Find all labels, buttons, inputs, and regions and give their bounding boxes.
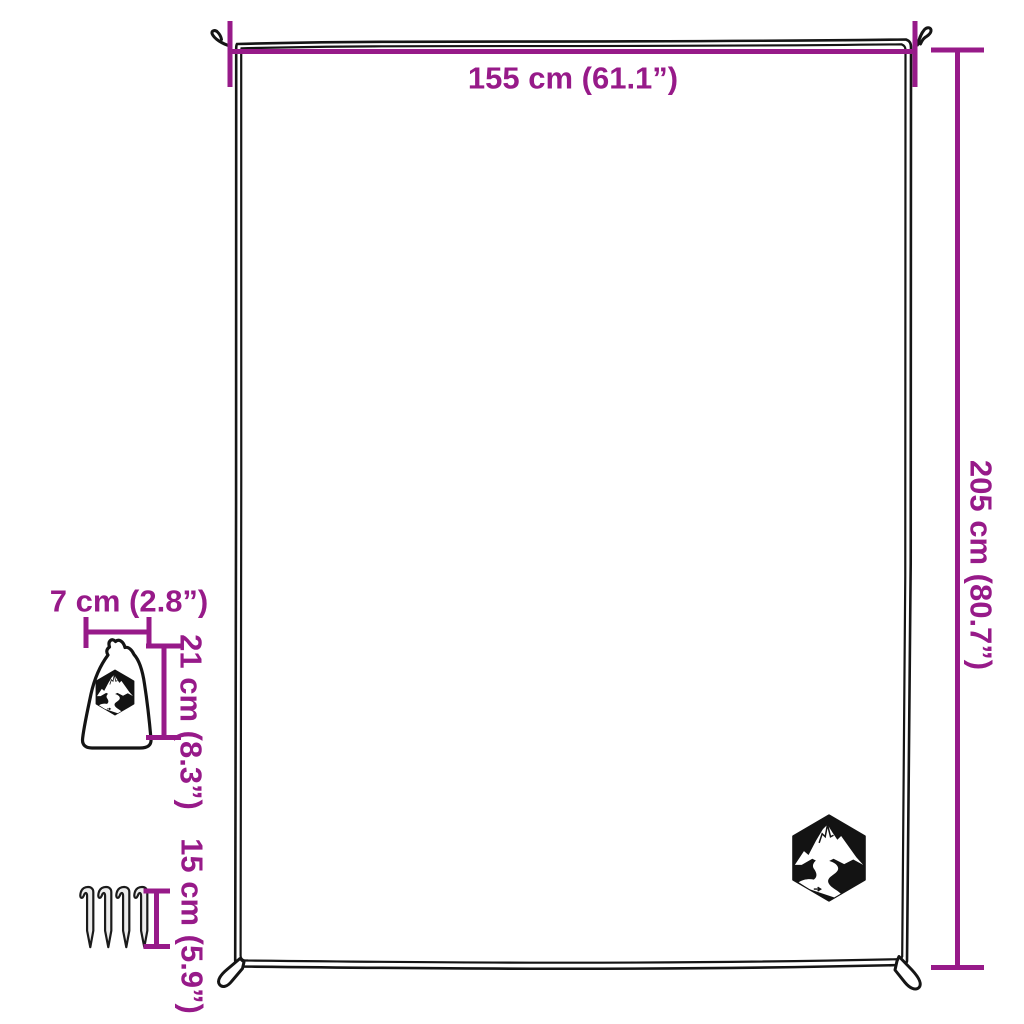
- blanket-height-label: 205 cm (80.7”): [966, 460, 997, 670]
- diagram-canvas: [0, 0, 1024, 1024]
- bag-height-label: 21 cm (8.3”): [176, 634, 207, 810]
- tent-peg-icon: [134, 887, 147, 947]
- storage-bag: [83, 640, 152, 748]
- blanket-corner-tab-bottom-left: [219, 959, 244, 987]
- tent-peg-icon: [98, 887, 111, 947]
- bag-width-label: 7 cm (2.8”): [50, 586, 209, 617]
- tent-pegs: [80, 887, 147, 947]
- peg-height-label: 15 cm (5.9”): [177, 838, 208, 1014]
- blanket-outline: [212, 28, 931, 989]
- tent-peg-icon: [80, 887, 93, 947]
- tent-peg-icon: [116, 887, 129, 947]
- blanket-corner-hook-top-left: [212, 31, 230, 46]
- blanket-width-label: 155 cm (61.1”): [468, 63, 678, 94]
- product-dimension-diagram: 155 cm (61.1”) 205 cm (80.7”) 7 cm (2.8”…: [0, 0, 1024, 1024]
- blanket-corner-hook-top-right: [918, 28, 932, 45]
